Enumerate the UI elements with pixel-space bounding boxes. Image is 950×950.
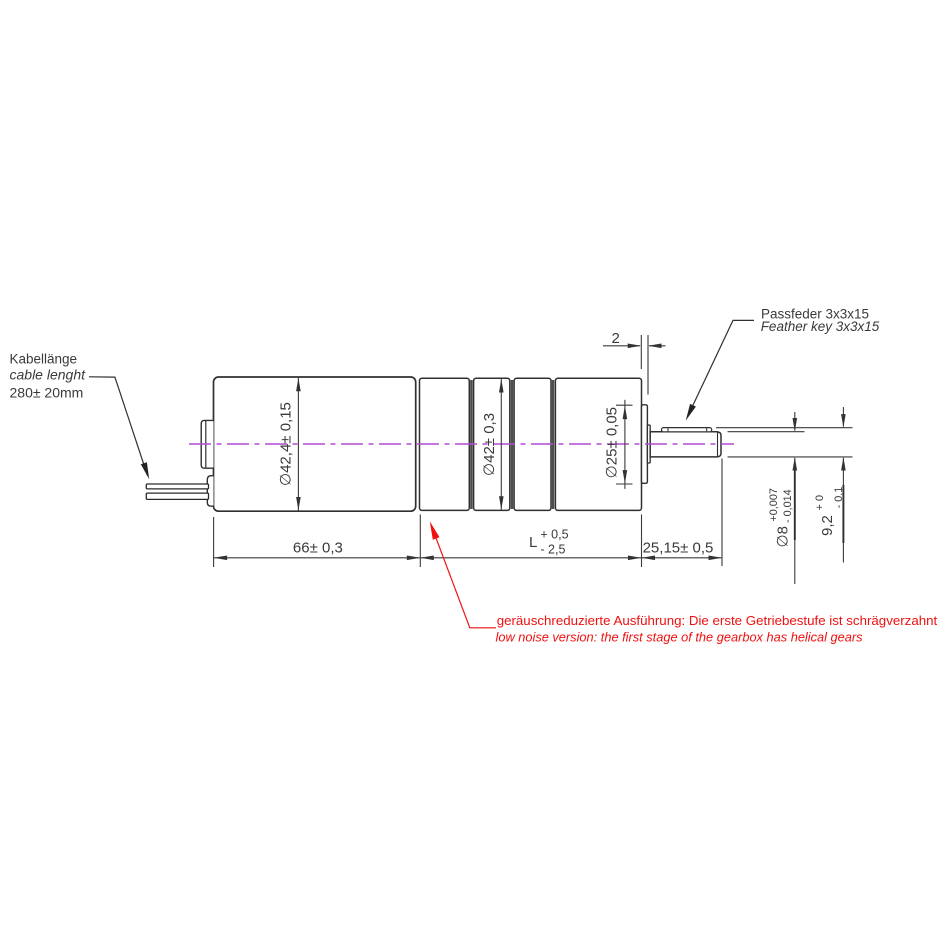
svg-text:+ 0: + 0 bbox=[814, 495, 826, 510]
svg-text:low noise version: the first s: low noise version: the first stage of th… bbox=[496, 630, 864, 645]
svg-text:∅8: ∅8 bbox=[775, 526, 792, 547]
svg-text:geräuschreduzierte Ausführung:: geräuschreduzierte Ausführung: Die erste… bbox=[497, 613, 938, 628]
svg-text:25,15± 0,5: 25,15± 0,5 bbox=[643, 539, 714, 556]
svg-text:9,2: 9,2 bbox=[819, 515, 836, 536]
svg-text:- 0,014: - 0,014 bbox=[782, 489, 794, 523]
svg-text:∅42± 0,3: ∅42± 0,3 bbox=[481, 413, 498, 476]
svg-text:- 0,1: - 0,1 bbox=[833, 487, 845, 509]
svg-text:2: 2 bbox=[612, 330, 620, 347]
svg-text:- 2,5: - 2,5 bbox=[540, 542, 565, 556]
svg-text:+0,007: +0,007 bbox=[768, 488, 780, 521]
svg-text:66± 0,3: 66± 0,3 bbox=[293, 539, 343, 556]
svg-text:+ 0,5: + 0,5 bbox=[540, 528, 568, 542]
svg-text:280± 20mm: 280± 20mm bbox=[10, 384, 84, 400]
svg-text:L: L bbox=[529, 534, 537, 551]
svg-text:∅42,4± 0,15: ∅42,4± 0,15 bbox=[278, 402, 295, 486]
svg-text:Kabellänge: Kabellänge bbox=[10, 351, 78, 366]
svg-text:Feather key 3x3x15: Feather key 3x3x15 bbox=[761, 319, 880, 334]
svg-text:cable lenght: cable lenght bbox=[10, 366, 87, 382]
svg-text:∅25± 0,05: ∅25± 0,05 bbox=[603, 407, 620, 478]
